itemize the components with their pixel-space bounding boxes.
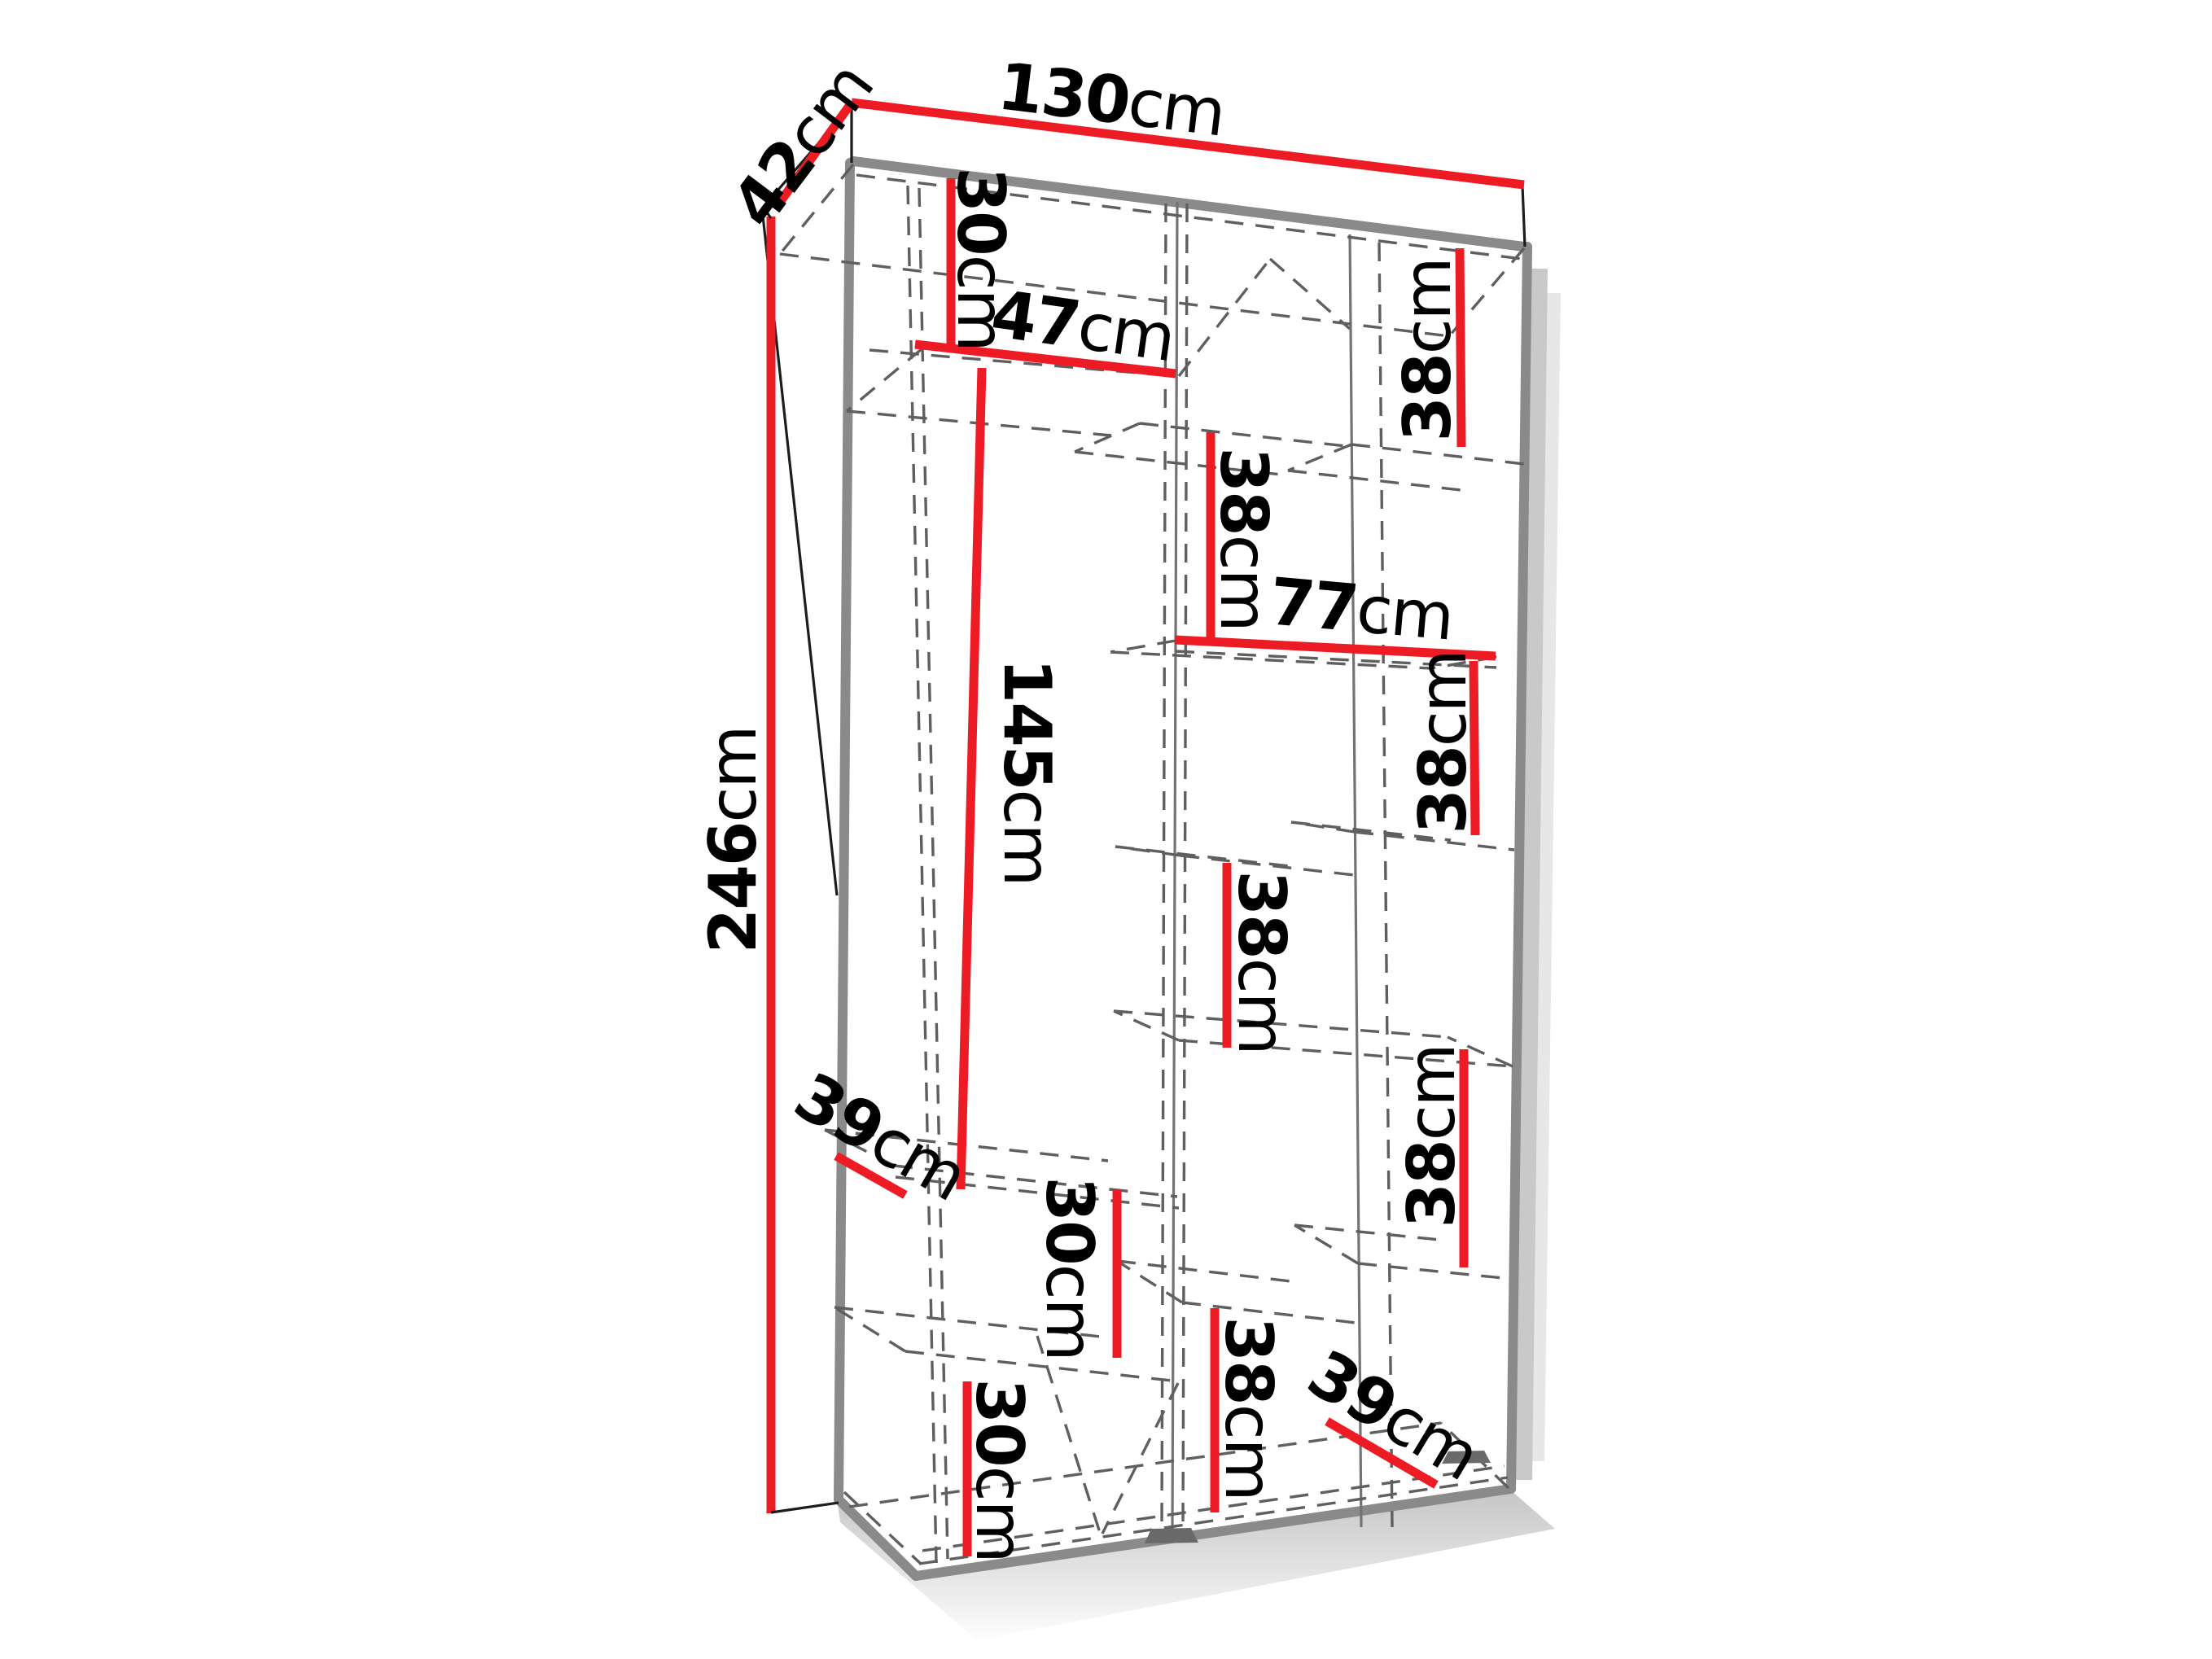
diagram-stage: 130cm 42cm 246cm 30cm 47cm 145cm 38cm 77… [0,0,2212,1659]
left-wall-hidden-a [908,186,936,1563]
shelf-side [834,1307,905,1351]
dimline-left-hanging [961,368,982,1189]
shelf-front [1140,423,1353,447]
foot-left [1145,1528,1198,1543]
partition-left-hidden-a [1162,204,1166,1530]
shelf-right-2 [1291,822,1514,850]
wardrobe-diagram: 130cm 42cm 246cm 30cm 47cm 145cm 38cm 77… [0,0,2212,1659]
shelf-side-l [1114,1011,1179,1040]
shelf-side [1288,444,1351,471]
label-right-upper: 38cm [1405,650,1481,834]
label-depth: 42cm [716,49,887,241]
shelf-left-low [834,1307,1179,1381]
label-left-hanging: 145cm [990,659,1066,886]
label-left-middle: 30cm [1032,1176,1108,1359]
bottom-left-diag-b [1102,1383,1178,1534]
partition-left-hidden-b [1183,204,1187,1530]
label-right-top: 38cm [1390,258,1465,441]
label-mid-middle: 38cm [1224,870,1300,1053]
label-right-lower: 38cm [1394,1044,1470,1228]
partition-left [1172,202,1177,1530]
shelf-side [1294,1225,1358,1263]
shelf-side [1075,423,1140,452]
partition-right [1350,234,1361,1527]
shelf-front [1358,1263,1511,1279]
label-width: 130cm [994,48,1229,151]
label-left-lower: 30cm [962,1378,1038,1561]
dimension-labels: 130cm 42cm 246cm 30cm 47cm 145cm 38cm 77… [695,48,1492,1562]
top-band-right-tick [1522,186,1525,247]
shelf-front [1351,444,1524,464]
label-inner-width: 77cm [1267,563,1456,654]
label-left-shelf-depth: 39cm [782,1057,979,1215]
top-mid-diag-a [1179,259,1270,376]
label-mid-lower: 38cm [1211,1316,1287,1499]
shelf-right-1 [1288,444,1524,490]
label-height: 246cm [695,727,771,954]
dimline-height-tick-bottom [771,1503,839,1512]
shelf-mid-3 [1117,1261,1363,1324]
shelf-right-3 [1294,1225,1511,1279]
label-bottom-depth: 39cm [1296,1335,1492,1495]
left-edge [839,163,850,1499]
label-left-shelf-width: 47cm [987,275,1179,375]
shelf-back [1288,471,1461,490]
base-left-edge [839,1499,916,1576]
floor-shadow [838,1490,1555,1640]
